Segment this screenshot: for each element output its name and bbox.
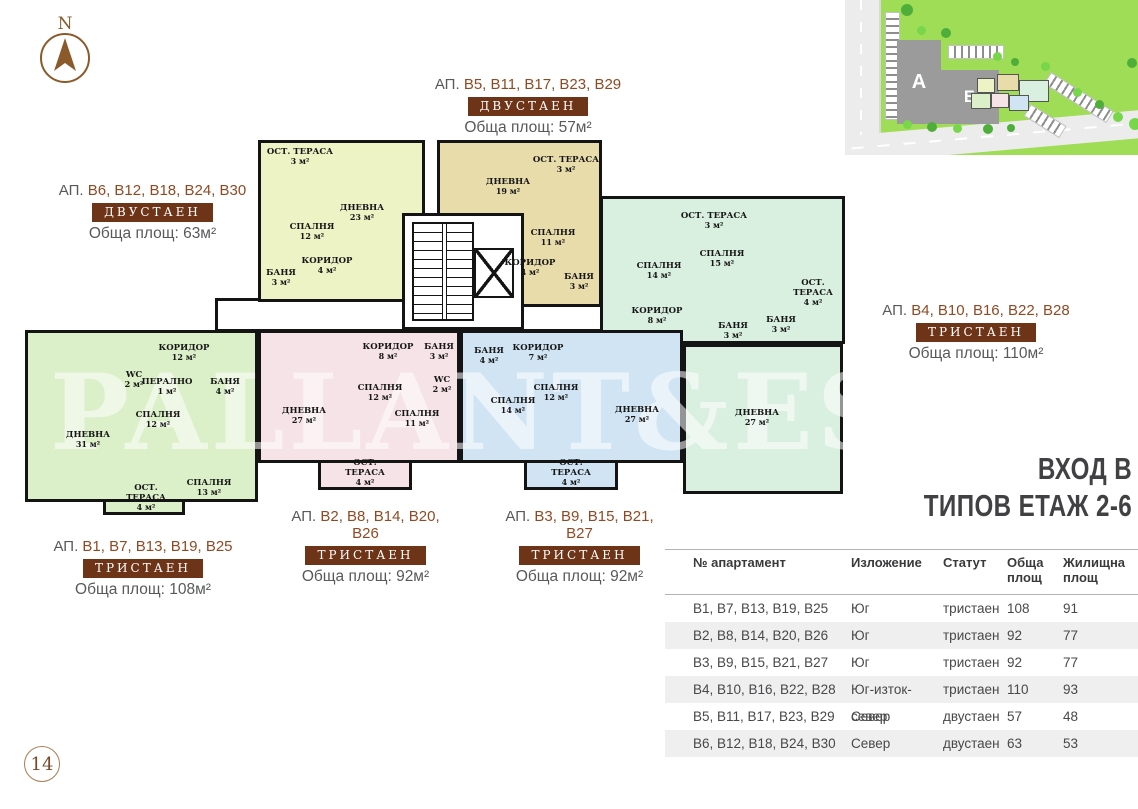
building-a: А	[897, 40, 941, 124]
tree-icon	[1113, 112, 1123, 122]
room-label: ОСТ. ТЕРАСА4 м²	[544, 458, 598, 488]
table-cell: 57	[1007, 703, 1063, 730]
compass: N	[30, 16, 100, 100]
room-label: БАНЯ3 м²	[266, 268, 296, 288]
label-prefix: АП.	[882, 302, 907, 319]
type-badge: ТРИСТАЕН	[916, 323, 1036, 342]
room-label: СПАЛНЯ11 м²	[395, 409, 440, 429]
table-cell: 77	[1063, 649, 1138, 676]
site-inset-apartment	[991, 93, 1009, 108]
label-prefix: АП.	[435, 76, 460, 93]
page-title-line1: ВХОД В	[924, 450, 1132, 487]
apartment-label-b1: АП. B1, B7, B13, B19, B25 ТРИСТАЕН Обща …	[48, 538, 238, 599]
site-inset-apartment	[971, 93, 991, 109]
table-row: B4, B10, B16, B22, B28 Юг-изток-север тр…	[665, 676, 1138, 703]
column-header: № апартамент	[693, 556, 851, 571]
page-title: ВХОД В ТИПОВ ЕТАЖ 2-6	[924, 450, 1132, 524]
label-units: B6, B12, B18, B24, B30	[88, 182, 246, 199]
table-row: B5, B11, B17, B23, B29 Север двустаен 57…	[665, 703, 1138, 730]
site-inset-apartment	[997, 74, 1019, 91]
tree-icon	[993, 52, 1002, 61]
room-label: БАНЯ4 м²	[474, 346, 504, 366]
table-cell: B5, B11, B17, B23, B29	[693, 703, 851, 730]
site-inset-apartment	[1009, 95, 1029, 111]
column-header: Изложение	[851, 556, 943, 571]
table-cell: Юг	[851, 649, 943, 676]
tree-icon	[1129, 118, 1138, 130]
room-label: WC2 м²	[125, 370, 144, 390]
table-cell: B6, B12, B18, B24, B30	[693, 730, 851, 757]
area-text: Обща площ: 92м²	[278, 568, 453, 586]
table-row: B3, B9, B15, B21, B27 Юг тристаен 92 77	[665, 649, 1138, 676]
tree-icon	[1095, 100, 1104, 109]
tree-icon	[953, 124, 962, 133]
room-label: WC2 м²	[433, 375, 452, 395]
room-label: КОРИДОР4 м²	[505, 258, 556, 278]
table-cell: 63	[1007, 730, 1063, 757]
room-label: СПАЛНЯ14 м²	[637, 261, 682, 281]
column-header: Статут	[943, 556, 1007, 571]
page-title-line2: ТИПОВ ЕТАЖ 2-6	[924, 487, 1132, 524]
room-label: КОРИДОР8 м²	[632, 306, 683, 326]
room-label: ОСТ. ТЕРАСА3 м²	[267, 147, 333, 167]
tree-icon	[917, 26, 926, 35]
type-badge: ТРИСТАЕН	[83, 559, 203, 578]
type-badge: ТРИСТАЕН	[519, 546, 639, 565]
label-prefix: АП.	[59, 182, 84, 199]
area-text: Обща площ: 110м²	[862, 345, 1090, 363]
table-cell: 92	[1007, 622, 1063, 649]
tree-icon	[941, 28, 951, 38]
tree-icon	[1011, 58, 1019, 66]
apartments-table: № апартамент Изложение Статут Обща площ …	[665, 549, 1138, 757]
table-cell: тристаен	[943, 595, 1007, 622]
site-inset-apartment	[977, 78, 995, 93]
room-label: СПАЛНЯ11 м²	[531, 228, 576, 248]
apartment-label-b2: АП. B2, B8, B14, B20, B26 ТРИСТАЕН Обща …	[278, 508, 453, 586]
apartment-label-b3: АП. B3, B9, B15, B21, B27 ТРИСТАЕН Обща …	[492, 508, 667, 586]
table-cell: Юг	[851, 622, 943, 649]
tree-icon	[1073, 88, 1082, 97]
table-cell: двустаен	[943, 703, 1007, 730]
table-cell: 91	[1063, 595, 1138, 622]
room-label: СПАЛНЯ12 м²	[358, 383, 403, 403]
room-label: СПАЛНЯ15 м²	[700, 249, 745, 269]
page-number-badge: 14	[24, 746, 60, 782]
table-cell: Север	[851, 703, 943, 730]
room-label: СПАЛНЯ12 м²	[136, 410, 181, 430]
room-label: ОСТ. ТЕРАСА3 м²	[533, 155, 599, 175]
room-label: ДНЕВНА27 м²	[735, 408, 779, 428]
room-label: БАНЯ3 м²	[718, 321, 748, 341]
room-label: ДНЕВНА23 м²	[340, 203, 384, 223]
site-plan: А Б	[845, 0, 1138, 155]
room-label: БАНЯ3 м²	[424, 342, 454, 362]
label-prefix: АП.	[53, 538, 78, 555]
table-cell: Север	[851, 730, 943, 757]
tree-icon	[1127, 58, 1137, 68]
apartment-label-b6: АП. B6, B12, B18, B24, B30 ДВУСТАЕН Обща…	[55, 182, 250, 243]
area-text: Обща площ: 92м²	[492, 568, 667, 586]
room-label: БАНЯ3 м²	[766, 315, 796, 335]
area-text: Обща площ: 108м²	[48, 581, 238, 599]
room-label: ПЕРАЛНО1 м²	[142, 377, 193, 397]
room-label: КОРИДОР7 м²	[513, 343, 564, 363]
table-cell: B2, B8, B14, B20, B26	[693, 622, 851, 649]
tree-icon	[927, 122, 937, 132]
room-label: ДНЕВНА27 м²	[282, 406, 326, 426]
room-label: ОСТ. ТЕРАСА3 м²	[681, 211, 747, 231]
table-row: B2, B8, B14, B20, B26 Юг тристаен 92 77	[665, 622, 1138, 649]
site-road-vertical	[845, 0, 881, 155]
staircase-icon	[412, 222, 474, 321]
label-units: B4, B10, B16, B22, B28	[911, 302, 1069, 319]
room-label: СПАЛНЯ14 м²	[491, 396, 536, 416]
table-header-row: № апартамент Изложение Статут Обща площ …	[665, 550, 1138, 594]
label-units: B2, B8, B14, B20, B26	[320, 508, 439, 542]
column-header: Обща площ	[1007, 556, 1063, 586]
tree-icon	[1007, 124, 1015, 132]
table-cell: 108	[1007, 595, 1063, 622]
apartment-label-b4: АП. B4, B10, B16, B22, B28 ТРИСТАЕН Обща…	[862, 302, 1090, 363]
tree-icon	[1041, 62, 1050, 71]
table-cell: 53	[1063, 730, 1138, 757]
table-row: B1, B7, B13, B19, B25 Юг тристаен 108 91	[665, 595, 1138, 622]
page-number: 14	[31, 754, 54, 775]
table-cell: B3, B9, B15, B21, B27	[693, 649, 851, 676]
type-badge: ДВУСТАЕН	[468, 97, 589, 116]
room-label: СПАЛНЯ13 м²	[187, 478, 232, 498]
table-cell: 77	[1063, 622, 1138, 649]
building-a-label: А	[912, 71, 926, 94]
area-text: Обща площ: 57м²	[422, 119, 634, 137]
room-label: ОСТ. ТЕРАСА4 м²	[119, 483, 173, 513]
room-label: ДНЕВНА19 м²	[486, 177, 530, 197]
table-cell: B1, B7, B13, B19, B25	[693, 595, 851, 622]
type-badge: ТРИСТАЕН	[305, 546, 425, 565]
label-units: B3, B9, B15, B21, B27	[534, 508, 653, 542]
compass-icon	[38, 29, 92, 85]
table-cell: тристаен	[943, 622, 1007, 649]
road-centerline	[860, 0, 862, 155]
table-cell: 92	[1007, 649, 1063, 676]
room-label: КОРИДОР4 м²	[302, 256, 353, 276]
table-cell: тристаен	[943, 649, 1007, 676]
tree-icon	[983, 124, 993, 134]
brochure-page: N А Б	[0, 0, 1138, 809]
room-label: СПАЛНЯ12 м²	[534, 383, 579, 403]
room-label: ОСТ. ТЕРАСА4 м²	[786, 278, 840, 308]
room-label: ДНЕВНА27 м²	[615, 405, 659, 425]
label-units: B1, B7, B13, B19, B25	[82, 538, 232, 555]
label-prefix: АП.	[291, 508, 316, 525]
table-row: B6, B12, B18, B24, B30 Север двустаен 63…	[665, 730, 1138, 757]
table-cell: двустаен	[943, 730, 1007, 757]
label-prefix: АП.	[505, 508, 530, 525]
room-label: ДНЕВНА31 м²	[66, 430, 110, 450]
area-text: Обща площ: 63м²	[55, 225, 250, 243]
column-header: Жилищна площ	[1063, 556, 1138, 586]
tree-icon	[903, 120, 912, 129]
label-units: B5, B11, B17, B23, B29	[464, 76, 621, 93]
room-label: СПАЛНЯ12 м²	[290, 222, 335, 242]
table-cell: Юг	[851, 595, 943, 622]
room-label: КОРИДОР8 м²	[363, 342, 414, 362]
apartment-label-b5: АП. B5, B11, B17, B23, B29 ДВУСТАЕН Обща…	[422, 76, 634, 137]
room-label: КОРИДОР12 м²	[159, 343, 210, 363]
type-badge: ДВУСТАЕН	[92, 203, 213, 222]
room-label: ОСТ. ТЕРАСА4 м²	[338, 458, 392, 488]
room-label: БАНЯ4 м²	[210, 377, 240, 397]
tree-icon	[901, 4, 913, 16]
room-label: БАНЯ3 м²	[564, 272, 594, 292]
table-cell: 48	[1063, 703, 1138, 730]
